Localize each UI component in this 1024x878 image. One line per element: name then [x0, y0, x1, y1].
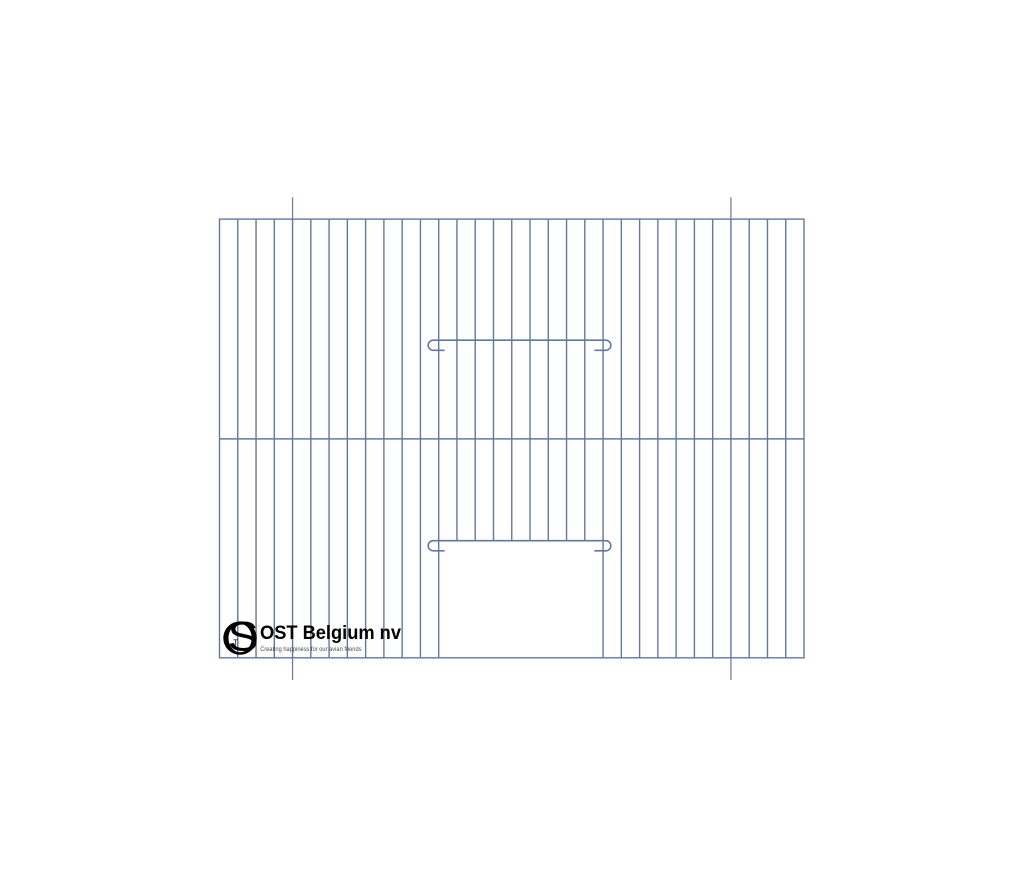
svg-text:OST Belgium nv: OST Belgium nv [260, 623, 401, 644]
svg-text:S: S [228, 613, 259, 660]
svg-text:Creating happiness for our avi: Creating happiness for our avian friends [260, 646, 361, 653]
